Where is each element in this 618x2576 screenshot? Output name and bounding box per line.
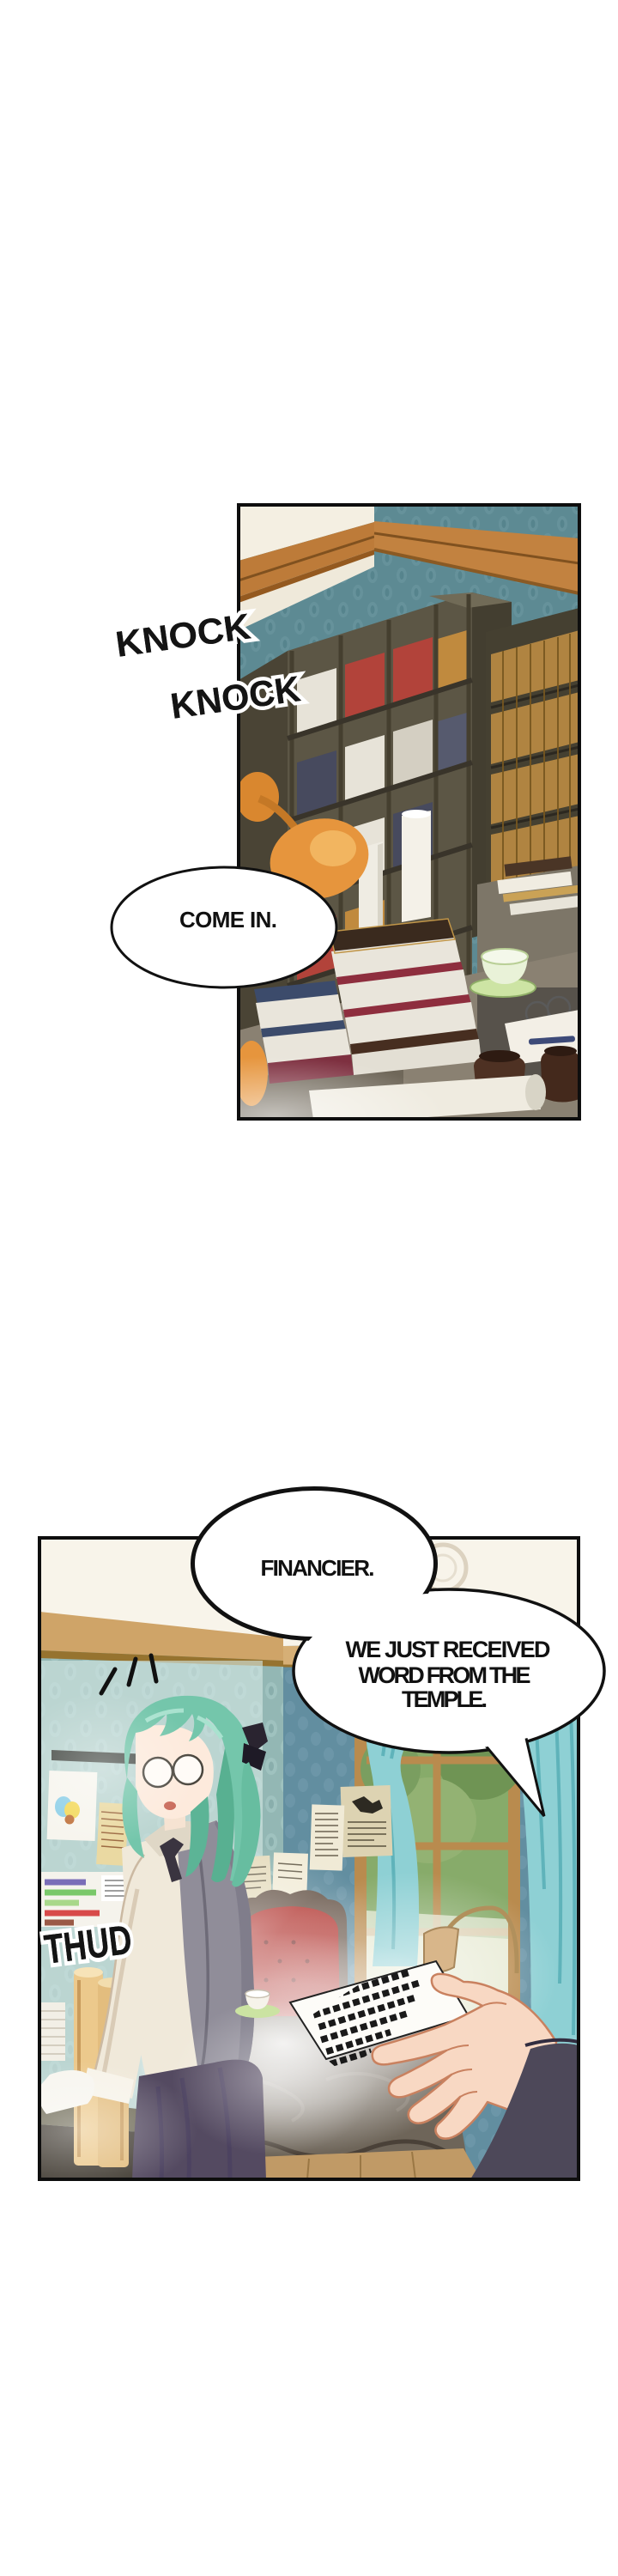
svg-text:KNOCK: KNOCK <box>113 605 253 665</box>
svg-text:WE JUST RECEIVED: WE JUST RECEIVED <box>346 1637 551 1662</box>
svg-text:WORD FROM THE: WORD FROM THE <box>359 1662 531 1688</box>
svg-text:COME IN.: COME IN. <box>179 907 277 933</box>
svg-text:FINANCIER.: FINANCIER. <box>261 1555 375 1581</box>
svg-text:TEMPLE.: TEMPLE. <box>402 1686 488 1712</box>
